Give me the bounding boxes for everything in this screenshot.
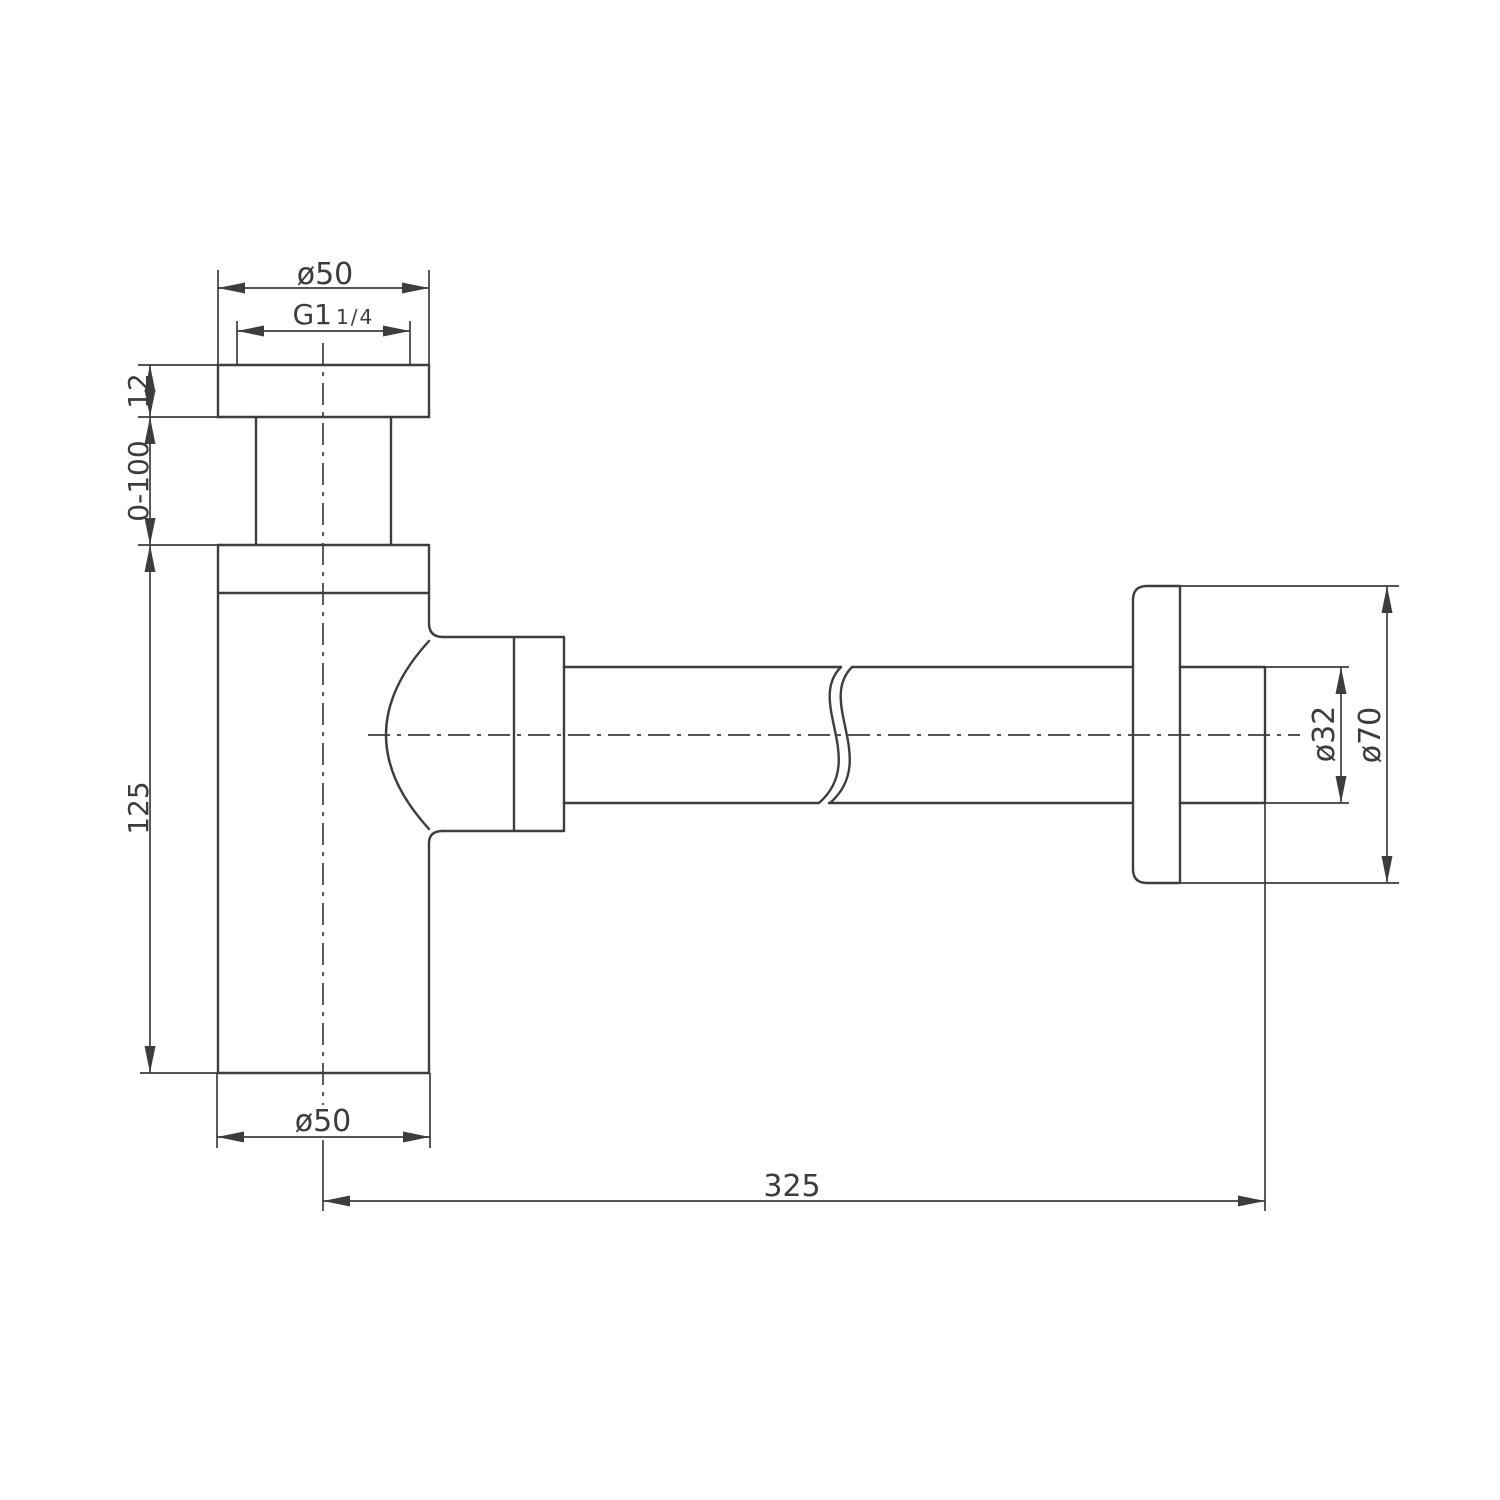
outlet-boss-outline — [443, 637, 564, 831]
rosette-diameter-label: ø70 — [1353, 707, 1388, 764]
thread-size-label: G1 — [292, 298, 332, 331]
dimension-wall-offset: 325 — [323, 803, 1265, 1211]
bottle-trap-dimension-drawing: ø50 G1 1/4 12 0-100 125 ø50 — [0, 0, 1500, 1500]
top-diameter-label: ø50 — [297, 257, 354, 292]
height-adjust-label: 0-100 — [122, 440, 155, 521]
flange-thickness-label: 12 — [122, 373, 155, 409]
thread-fraction-label: 1/4 — [336, 305, 374, 329]
body-diameter-label: ø50 — [295, 1104, 352, 1139]
body-height-label: 125 — [122, 781, 155, 834]
centerlines — [323, 343, 1300, 1105]
dimension-height-adjust: 0-100 — [122, 417, 218, 545]
technical-drawing-page: ø50 G1 1/4 12 0-100 125 ø50 — [0, 0, 1500, 1500]
dimension-flange-thickness: 12 — [122, 365, 218, 417]
dimension-body-height: 125 — [122, 545, 217, 1073]
pipe-diameter-label: ø32 — [1307, 706, 1342, 763]
part-outline — [218, 365, 1265, 1073]
body-outline — [218, 545, 443, 1073]
wall-offset-label: 325 — [763, 1169, 820, 1204]
